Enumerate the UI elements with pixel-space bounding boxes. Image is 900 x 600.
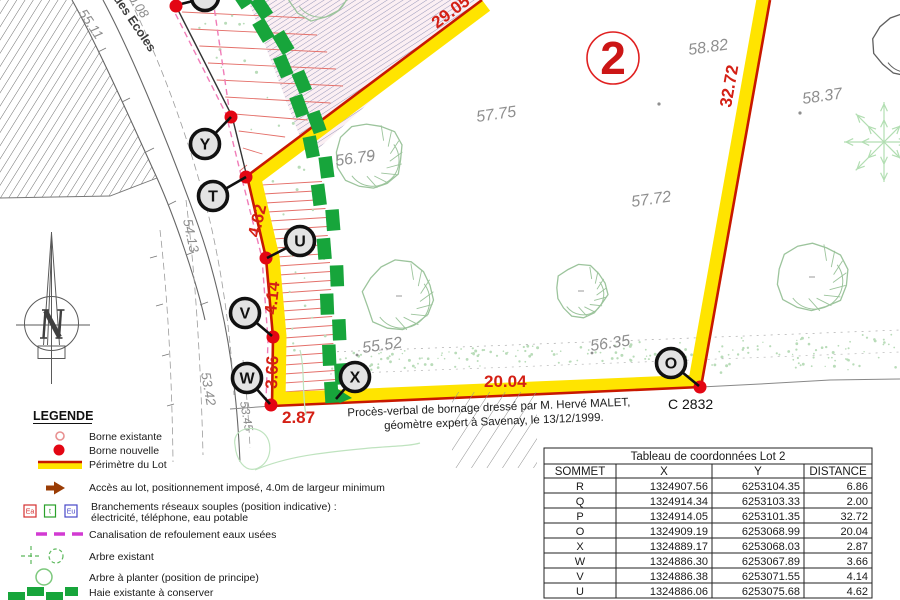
svg-text:V: V [240, 306, 251, 323]
svg-text:1324886.38: 1324886.38 [650, 571, 708, 583]
svg-text:20.04: 20.04 [840, 526, 868, 538]
svg-text:Arbre à planter (position de p: Arbre à planter (position de principe) [89, 572, 259, 584]
svg-text:3.66: 3.66 [847, 556, 868, 568]
svg-text:Tableau de coordonnées Lot 2: Tableau de coordonnées Lot 2 [631, 451, 786, 463]
svg-text:1324909.19: 1324909.19 [650, 526, 708, 538]
svg-text:DISTANCE: DISTANCE [809, 466, 867, 478]
svg-text:X: X [660, 466, 668, 478]
svg-text:6.86: 6.86 [847, 481, 868, 493]
svg-text:X: X [350, 370, 361, 387]
svg-text:6253067.89: 6253067.89 [742, 556, 800, 568]
svg-text:électricité, téléphone, eau po: électricité, téléphone, eau potable [91, 512, 248, 524]
svg-text:3.66: 3.66 [262, 355, 282, 389]
svg-text:6253104.35: 6253104.35 [742, 481, 800, 493]
svg-text:Arbre existant: Arbre existant [89, 551, 154, 563]
svg-text:Y: Y [754, 466, 762, 478]
svg-text:R: R [576, 481, 584, 493]
svg-text:Ea: Ea [26, 509, 35, 516]
svg-text:1324889.17: 1324889.17 [650, 541, 708, 553]
svg-text:6253075.68: 6253075.68 [742, 586, 800, 598]
svg-text:Q: Q [576, 496, 585, 508]
svg-text:4.14: 4.14 [847, 571, 868, 583]
svg-text:O: O [665, 356, 677, 373]
svg-text:1324907.56: 1324907.56 [650, 481, 708, 493]
svg-text:6253068.99: 6253068.99 [742, 526, 800, 538]
svg-text:Y: Y [200, 137, 211, 154]
svg-text:1324914.34: 1324914.34 [650, 496, 708, 508]
svg-text:Borne existante: Borne existante [89, 431, 162, 443]
svg-text:X: X [576, 541, 584, 553]
svg-text:4.14: 4.14 [261, 280, 283, 315]
svg-text:2.87: 2.87 [282, 408, 315, 427]
svg-text:2.00: 2.00 [847, 496, 868, 508]
svg-text:LEGENDE: LEGENDE [33, 409, 93, 423]
svg-text:P: P [576, 511, 583, 523]
svg-text:Haie existante à conserver: Haie existante à conserver [89, 587, 214, 599]
svg-text:W: W [575, 556, 586, 568]
svg-text:6253071.55: 6253071.55 [742, 571, 800, 583]
svg-text:20.04: 20.04 [484, 372, 527, 391]
svg-text:32.72: 32.72 [840, 511, 868, 523]
svg-text:2: 2 [600, 32, 626, 84]
svg-text:6253068.03: 6253068.03 [742, 541, 800, 553]
svg-text:O: O [576, 526, 585, 538]
svg-text:C 2832: C 2832 [668, 396, 713, 412]
svg-text:W: W [239, 371, 255, 388]
svg-text:U: U [576, 586, 584, 598]
svg-text:Canalisation de refoulement ea: Canalisation de refoulement eaux usées [89, 529, 276, 541]
svg-text:1324886.06: 1324886.06 [650, 586, 708, 598]
svg-text:t: t [49, 509, 51, 516]
svg-text:1324914.05: 1324914.05 [650, 511, 708, 523]
svg-text:Accès au lot, positionnement i: Accès au lot, positionnement imposé, 4.0… [89, 482, 385, 494]
svg-text:4.62: 4.62 [847, 586, 868, 598]
svg-text:Borne nouvelle: Borne nouvelle [89, 445, 159, 457]
svg-text:1324886.30: 1324886.30 [650, 556, 708, 568]
svg-text:V: V [576, 571, 584, 583]
svg-text:Périmètre du Lot: Périmètre du Lot [89, 459, 167, 471]
svg-text:U: U [294, 234, 306, 251]
svg-text:6253103.33: 6253103.33 [742, 496, 800, 508]
svg-text:Eu: Eu [67, 509, 76, 516]
svg-text:6253101.35: 6253101.35 [742, 511, 800, 523]
svg-text:2.87: 2.87 [847, 541, 868, 553]
svg-text:SOMMET: SOMMET [555, 466, 605, 478]
svg-text:T: T [208, 189, 218, 206]
